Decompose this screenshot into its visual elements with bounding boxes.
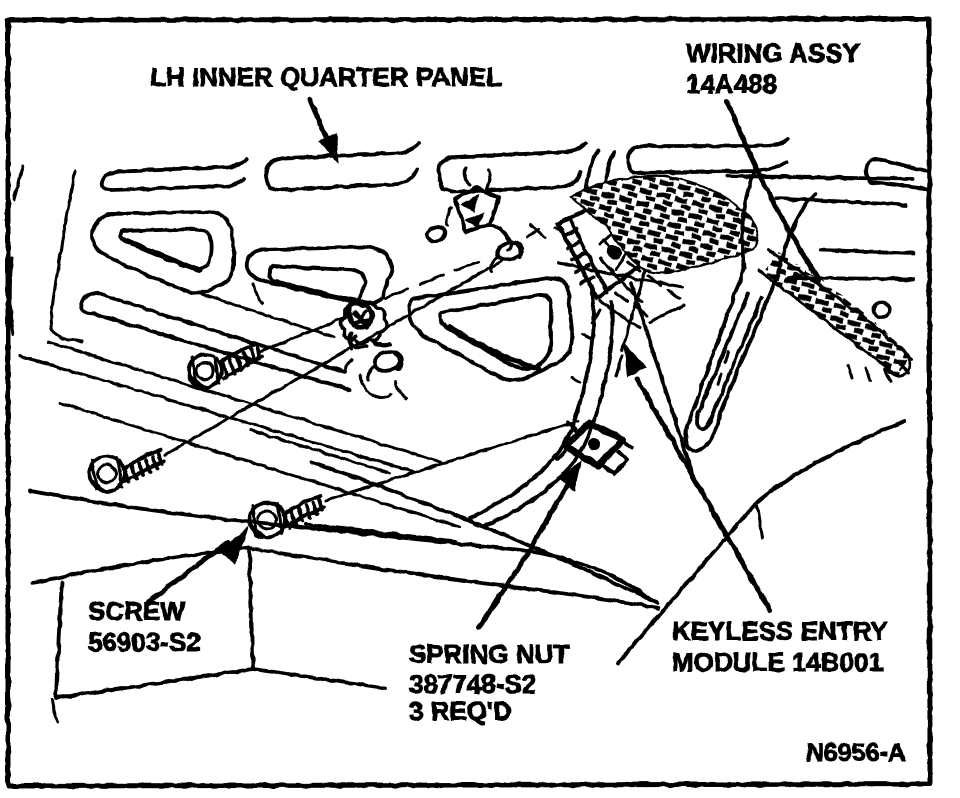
svg-text:56903-S2: 56903-S2 <box>88 627 201 657</box>
svg-text:3 REQ'D: 3 REQ'D <box>409 696 512 726</box>
svg-text:SCREW: SCREW <box>88 596 185 626</box>
svg-text:KEYLESS ENTRY: KEYLESS ENTRY <box>672 616 888 646</box>
svg-text:WIRING ASSY: WIRING ASSY <box>686 38 860 68</box>
svg-text:LH INNER QUARTER PANEL: LH INNER QUARTER PANEL <box>150 62 502 92</box>
svg-text:SPRING NUT: SPRING NUT <box>409 639 569 669</box>
svg-text:N6956-A: N6956-A <box>806 739 906 767</box>
svg-text:387748-S2: 387748-S2 <box>409 669 536 699</box>
svg-text:MODULE 14B001: MODULE 14B001 <box>672 647 883 677</box>
svg-text:14A488: 14A488 <box>686 69 777 99</box>
